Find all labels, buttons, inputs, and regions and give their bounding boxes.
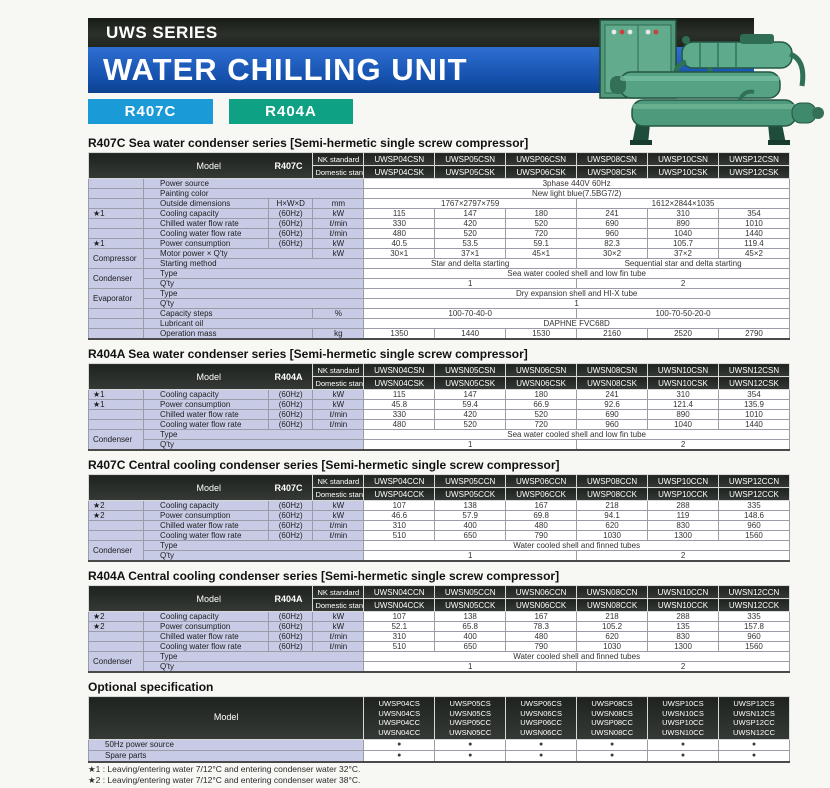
availability-dot: ● [435,740,506,751]
model-name-domestic: UWSP08CCK [577,488,648,501]
spec-value: 510 [364,531,435,541]
section-subtitle: Semi-hermetic single screw compressor [325,458,555,472]
row-frequency: (60Hz) [268,622,312,632]
row-unit: ℓ/min [313,632,364,642]
spec-value: 830 [648,521,719,531]
row-label: Motor power × Q'ty [144,249,313,259]
spec-value: 1 [364,662,577,673]
availability-dot: ● [506,740,577,751]
spec-value: 135 [648,622,719,632]
spec-value: 310 [364,521,435,531]
spec-value: 241 [577,390,648,400]
row-unit: kW [313,249,364,259]
row-group-empty [89,642,144,652]
model-header: ModelR407C [91,483,310,493]
spec-value: 520 [506,410,577,420]
spec-value: 53.5 [435,239,506,249]
model-header-cell: ModelR407C [89,475,313,501]
spec-value: 1040 [648,229,719,239]
spec-value: 1350 [364,329,435,340]
spec-value: 218 [577,501,648,511]
spec-value: 354 [718,390,789,400]
spec-value: 420 [435,219,506,229]
model-label: Model [91,161,274,171]
row-label: Type [144,289,364,299]
row-label: Type [144,269,364,279]
availability-dot: ● [506,751,577,763]
row-label: Starting method [144,259,364,269]
availability-dot: ● [718,740,789,751]
row-group-label: Condenser [89,269,144,289]
row-unit: ℓ/min [313,410,364,420]
spec-value: 1 [364,279,577,289]
model-header: ModelR407C [91,161,310,171]
refrigerant-badge-r407c: R407C [88,99,213,124]
optional-model-name: UWSN08CC [578,728,646,738]
row-frequency: (60Hz) [268,209,312,219]
row-frequency: (60Hz) [268,501,312,511]
nk-standard-label: NK standard [313,364,364,377]
spec-value: 138 [435,501,506,511]
row-group-label: ★1 [89,239,144,249]
row-label: Q'ty [144,299,364,309]
row-unit: ℓ/min [313,521,364,531]
optional-row-label: 50Hz power source [89,740,364,751]
chiller-unit-illustration [590,4,828,150]
spec-value: 59.1 [506,239,577,249]
spec-value: 520 [435,229,506,239]
model-name-domestic: UWSN06CSK [506,377,577,390]
row-group-label: ★1 [89,209,144,219]
spec-value: 115 [364,390,435,400]
spec-value: 100-70-40-0 [364,309,577,319]
spec-value: 400 [435,521,506,531]
spec-value: 288 [648,612,719,622]
section-title: R407C Central cooling condenser series [… [88,458,790,472]
model-name-nk: UWSP08CSN [577,153,648,166]
spec-value: 890 [648,219,719,229]
spec-value: 138 [435,612,506,622]
row-frequency: (60Hz) [268,229,312,239]
spec-value: 520 [506,219,577,229]
spec-value: 1440 [718,420,789,430]
row-group-label: Condenser [89,430,144,451]
spec-value: 620 [577,632,648,642]
row-frequency: (60Hz) [268,632,312,642]
row-unit: kW [313,400,364,410]
model-name-domestic: UWSN04CCK [364,599,435,612]
row-group-label: ★2 [89,511,144,521]
spec-value: Dry expansion shell and HI-X tube [364,289,790,299]
section-title: R407C Sea water condenser series [Semi-h… [88,136,790,150]
section-title: R404A Central cooling condenser series [… [88,569,790,583]
spec-value: 890 [648,410,719,420]
row-label: Cooling water flow rate [144,420,269,430]
model-name-domestic: UWSP06CSK [506,166,577,179]
spec-value: 650 [435,642,506,652]
row-frequency: (60Hz) [268,612,312,622]
spec-value: 37×1 [435,249,506,259]
model-name-nk: UWSN04CCN [364,586,435,599]
row-unit: kW [313,511,364,521]
section-subtitle: Semi-hermetic single screw compressor [294,347,524,361]
spec-value: 119 [648,511,719,521]
row-group-empty [89,179,144,189]
row-group-empty [89,329,144,340]
spec-value: 480 [506,632,577,642]
spec-value: 59.4 [435,400,506,410]
section-title-text: R404A Central cooling condenser series [88,569,321,583]
row-unit: mm [313,199,364,209]
spec-value: 690 [577,219,648,229]
row-group-empty [89,420,144,430]
model-name-nk: UWSN04CSN [364,364,435,377]
model-name-domestic: UWSP12CSK [718,166,789,179]
row-group-label: Condenser [89,652,144,673]
model-name-domestic: UWSP12CCK [718,488,789,501]
bracket-close: ] [555,569,559,583]
row-label: Q'ty [144,662,364,673]
spec-value: 45.8 [364,400,435,410]
row-label: Lubricant oil [144,319,364,329]
spec-value: 2 [577,279,790,289]
model-name-nk: UWSP12CCN [718,475,789,488]
row-label: Type [144,652,364,662]
optional-model-name: UWSP06CC [507,718,575,728]
spec-value: 30×1 [364,249,435,259]
model-name-nk: UWSN12CSN [718,364,789,377]
row-frequency: (60Hz) [268,531,312,541]
model-name-domestic: UWSN04CSK [364,377,435,390]
spec-value: 40.5 [364,239,435,249]
spec-value: 1440 [435,329,506,340]
optional-model-column: UWSP05CSUWSN05CSUWSP05CCUWSN05CC [435,697,506,740]
bracket-close: ] [524,136,528,150]
spec-value: 147 [435,390,506,400]
model-label: Model [91,594,274,604]
series-title: UWS SERIES [106,23,218,43]
spec-value: Sea water cooled shell and low fin tube [364,430,790,440]
refrigerant-code: R404A [274,372,310,382]
model-label: Model [91,372,274,382]
refrigerant-code: R407C [274,483,310,493]
row-unit: kg [313,329,364,340]
spec-value: 147 [435,209,506,219]
spec-value: 2 [577,662,790,673]
row-group-empty [89,319,144,329]
row-frequency: (60Hz) [268,511,312,521]
spec-value: 57.9 [435,511,506,521]
model-name-nk: UWSN06CCN [506,586,577,599]
row-unit: kW [313,612,364,622]
optional-model-name: UWSP10CS [649,699,717,709]
optional-model-name: UWSN10CC [649,728,717,738]
spec-value: 480 [506,521,577,531]
optional-model-name: UWSN08CS [578,709,646,719]
spec-value: 167 [506,612,577,622]
row-frequency: (60Hz) [268,642,312,652]
optional-model-name: UWSN06CS [507,709,575,719]
model-name-nk: UWSP04CSN [364,153,435,166]
product-photo [590,4,828,150]
row-unit: % [313,309,364,319]
availability-dot: ● [648,740,719,751]
spec-value: 46.6 [364,511,435,521]
spec-value: 1010 [718,219,789,229]
row-label: Cooling capacity [144,390,269,400]
model-name-nk: UWSN08CCN [577,586,648,599]
model-name-domestic: UWSN05CCK [435,599,506,612]
spec-value: 30×2 [577,249,648,259]
spec-value: Water cooled shell and finned tubes [364,541,790,551]
spec-value: 3phase 440V 60Hz [364,179,790,189]
spec-value: 45×2 [718,249,789,259]
bracket-close: ] [524,347,528,361]
spec-value: 720 [506,229,577,239]
optional-model-column: UWSP10CSUWSN10CSUWSP10CCUWSN10CC [648,697,719,740]
spec-value: 1 [364,440,577,451]
model-name-nk: UWSN08CSN [577,364,648,377]
spec-value: 310 [648,390,719,400]
spec-value: 1040 [648,420,719,430]
spec-table-4: ModelR404ANK standardUWSN04CCNUWSN05CCNU… [88,585,790,673]
row-label: Power consumption [144,622,269,632]
optional-model-name: UWSP10CC [649,718,717,728]
row-unit: ℓ/min [313,219,364,229]
model-name-nk: UWSN10CCN [648,586,719,599]
spec-value: 1612×2844×1035 [577,199,790,209]
spec-value: 218 [577,612,648,622]
spec-value: 105.2 [577,622,648,632]
model-name-nk: UWSN10CSN [648,364,719,377]
row-frequency: (60Hz) [268,410,312,420]
model-header-cell: ModelR404A [89,364,313,390]
section-title-text: R407C Central cooling condenser series [88,458,321,472]
model-name-nk: UWSN12CCN [718,586,789,599]
row-frequency: (60Hz) [268,400,312,410]
spec-value: 78.3 [506,622,577,632]
model-name-domestic: UWSP06CCK [506,488,577,501]
row-group-label: ★2 [89,612,144,622]
model-header-cell: ModelR404A [89,586,313,612]
model-name-domestic: UWSN08CSK [577,377,648,390]
model-name-domestic: UWSP08CSK [577,166,648,179]
row-group-label: ★2 [89,622,144,632]
spec-value: 107 [364,501,435,511]
nk-standard-label: NK standard [313,153,364,166]
spec-value: 1300 [648,642,719,652]
optional-model-name: UWSP12CC [720,718,788,728]
model-name-domestic: UWSN08CCK [577,599,648,612]
spec-value: 2520 [648,329,719,340]
optional-model-name: UWSN05CS [436,709,504,719]
spec-value: 400 [435,632,506,642]
spec-value: 1010 [718,410,789,420]
row-label: Chilled water flow rate [144,219,269,229]
row-label: Type [144,430,364,440]
spec-value: New light blue(7.5BG7/2) [364,189,790,199]
refrigerant-badge-r404a: R404A [229,99,353,124]
spec-value: 480 [364,420,435,430]
optional-model-name: UWSP12CS [720,699,788,709]
spec-value: 288 [648,501,719,511]
row-unit: kW [313,239,364,249]
refrigerant-code: R404A [274,594,310,604]
optional-model-name: UWSP08CS [578,699,646,709]
spec-value: 690 [577,410,648,420]
availability-dot: ● [364,751,435,763]
row-label: Q'ty [144,440,364,451]
row-label: Cooling water flow rate [144,531,269,541]
spec-value: 1 [364,551,577,562]
spec-value: 92.6 [577,400,648,410]
row-group-label: Compressor [89,249,144,269]
model-name-nk: UWSP05CCN [435,475,506,488]
optional-model-name: UWSN12CS [720,709,788,719]
spec-table-3: ModelR407CNK standardUWSP04CCNUWSP05CCNU… [88,474,790,562]
spec-value: DAPHNE FVC68D [364,319,790,329]
spec-value: 1030 [577,531,648,541]
row-frequency: (60Hz) [268,521,312,531]
row-label: Cooling water flow rate [144,229,269,239]
spec-value: 480 [364,229,435,239]
spec-value: 330 [364,219,435,229]
row-group-empty [89,410,144,420]
optional-model-column: UWSP12CSUWSN12CSUWSP12CCUWSN12CC [718,697,789,740]
spec-value: 65.8 [435,622,506,632]
optional-model-column: UWSP06CSUWSN06CSUWSP06CCUWSN06CC [506,697,577,740]
row-label: Outside dimensions [144,199,269,209]
spec-value: 94.1 [577,511,648,521]
row-group-empty [89,229,144,239]
optional-row-label: Spare parts [89,751,364,763]
availability-dot: ● [435,751,506,763]
section-subtitle: Semi-hermetic single screw compressor [325,569,555,583]
spec-value: 720 [506,420,577,430]
spec-value: 180 [506,209,577,219]
spec-value: 510 [364,642,435,652]
footnotes: ★1 : Leaving/entering water 7/12°C and e… [88,764,688,786]
row-label: Chilled water flow rate [144,521,269,531]
row-group-label: ★1 [89,400,144,410]
row-group-empty [89,219,144,229]
spec-value: 1300 [648,531,719,541]
row-label: Capacity steps [144,309,313,319]
optional-model-name: UWSP05CS [436,699,504,709]
optional-model-column: UWSP04CSUWSN04CSUWSP04CCUWSN04CC [364,697,435,740]
model-name-nk: UWSP10CCN [648,475,719,488]
spec-value: Star and delta starting [364,259,577,269]
spec-value: 1560 [718,531,789,541]
spec-value: Sequential star and delta starting [577,259,790,269]
model-name-domestic: UWSP04CSK [364,166,435,179]
model-name-domestic: UWSN12CCK [718,599,789,612]
spec-value: 148.6 [718,511,789,521]
bracket-close: ] [556,458,560,472]
spec-value: 520 [435,420,506,430]
section-title-text: R404A Sea water condenser series [88,347,290,361]
row-label: Cooling capacity [144,612,269,622]
model-name-nk: UWSP06CCN [506,475,577,488]
spec-table-2: ModelR404ANK standardUWSN04CSNUWSN05CSNU… [88,363,790,451]
section-subtitle: Semi-hermetic single screw compressor [294,136,524,150]
domestic-standard-label: Domestic standard [313,166,364,179]
model-name-nk: UWSN06CSN [506,364,577,377]
spec-value: 105.7 [648,239,719,249]
row-group-empty [89,189,144,199]
model-name-domestic: UWSN05CSK [435,377,506,390]
row-unit: ℓ/min [313,642,364,652]
row-group-empty [89,309,144,319]
row-group-empty [89,199,144,209]
row-group-label: Evaporator [89,289,144,309]
spec-value: 330 [364,410,435,420]
row-unit: kW [313,501,364,511]
spec-value: 1440 [718,229,789,239]
spec-value: 960 [718,521,789,531]
row-label: Power consumption [144,400,269,410]
spec-value: 830 [648,632,719,642]
optional-model-name: UWSN10CS [649,709,717,719]
row-group-empty [89,521,144,531]
row-label: Power source [144,179,364,189]
spec-value: 1560 [718,642,789,652]
catalog-page: UWS SERIES WATER CHILLING UNIT R407C R40… [0,0,830,788]
spec-value: 420 [435,410,506,420]
spec-value: 135.9 [718,400,789,410]
optional-model-name: UWSN04CC [365,728,433,738]
availability-dot: ● [577,751,648,763]
row-label: Chilled water flow rate [144,410,269,420]
optional-model-column: UWSP08CSUWSN08CSUWSP08CCUWSN08CC [577,697,648,740]
spec-value: 66.9 [506,400,577,410]
row-label: Cooling capacity [144,209,269,219]
optional-model-name: UWSN06CC [507,728,575,738]
page-title: WATER CHILLING UNIT [103,52,468,88]
row-frequency: (60Hz) [268,239,312,249]
optional-model-name: UWSP05CC [436,718,504,728]
row-label: Q'ty [144,551,364,562]
footnote-2: ★2 : Leaving/entering water 7/12°C and e… [88,775,688,786]
row-frequency: (60Hz) [268,219,312,229]
model-name-nk: UWSN05CSN [435,364,506,377]
model-name-nk: UWSP12CSN [718,153,789,166]
row-frequency: (60Hz) [268,390,312,400]
nk-standard-label: NK standard [313,475,364,488]
spec-value: 335 [718,501,789,511]
spec-value: 1530 [506,329,577,340]
spec-value: 2790 [718,329,789,340]
spec-value: 1767×2797×759 [364,199,577,209]
model-name-domestic: UWSP10CSK [648,166,719,179]
optional-model-name: UWSP04CS [365,699,433,709]
optional-model-name: UWSP08CC [578,718,646,728]
spec-value: 100-70-50-20-0 [577,309,790,319]
model-name-domestic: UWSN06CCK [506,599,577,612]
spec-value: 2 [577,440,790,451]
model-name-domestic: UWSN10CCK [648,599,719,612]
model-name-nk: UWSP04CCN [364,475,435,488]
spec-value: 310 [364,632,435,642]
model-name-nk: UWSP08CCN [577,475,648,488]
spec-value: 157.8 [718,622,789,632]
availability-dot: ● [577,740,648,751]
row-label: Painting color [144,189,364,199]
domestic-standard-label: Domestic standard [313,599,364,612]
spec-tables-container: R407C Sea water condenser series [Semi-h… [88,136,790,763]
row-group-label: ★2 [89,501,144,511]
row-label: Cooling capacity [144,501,269,511]
